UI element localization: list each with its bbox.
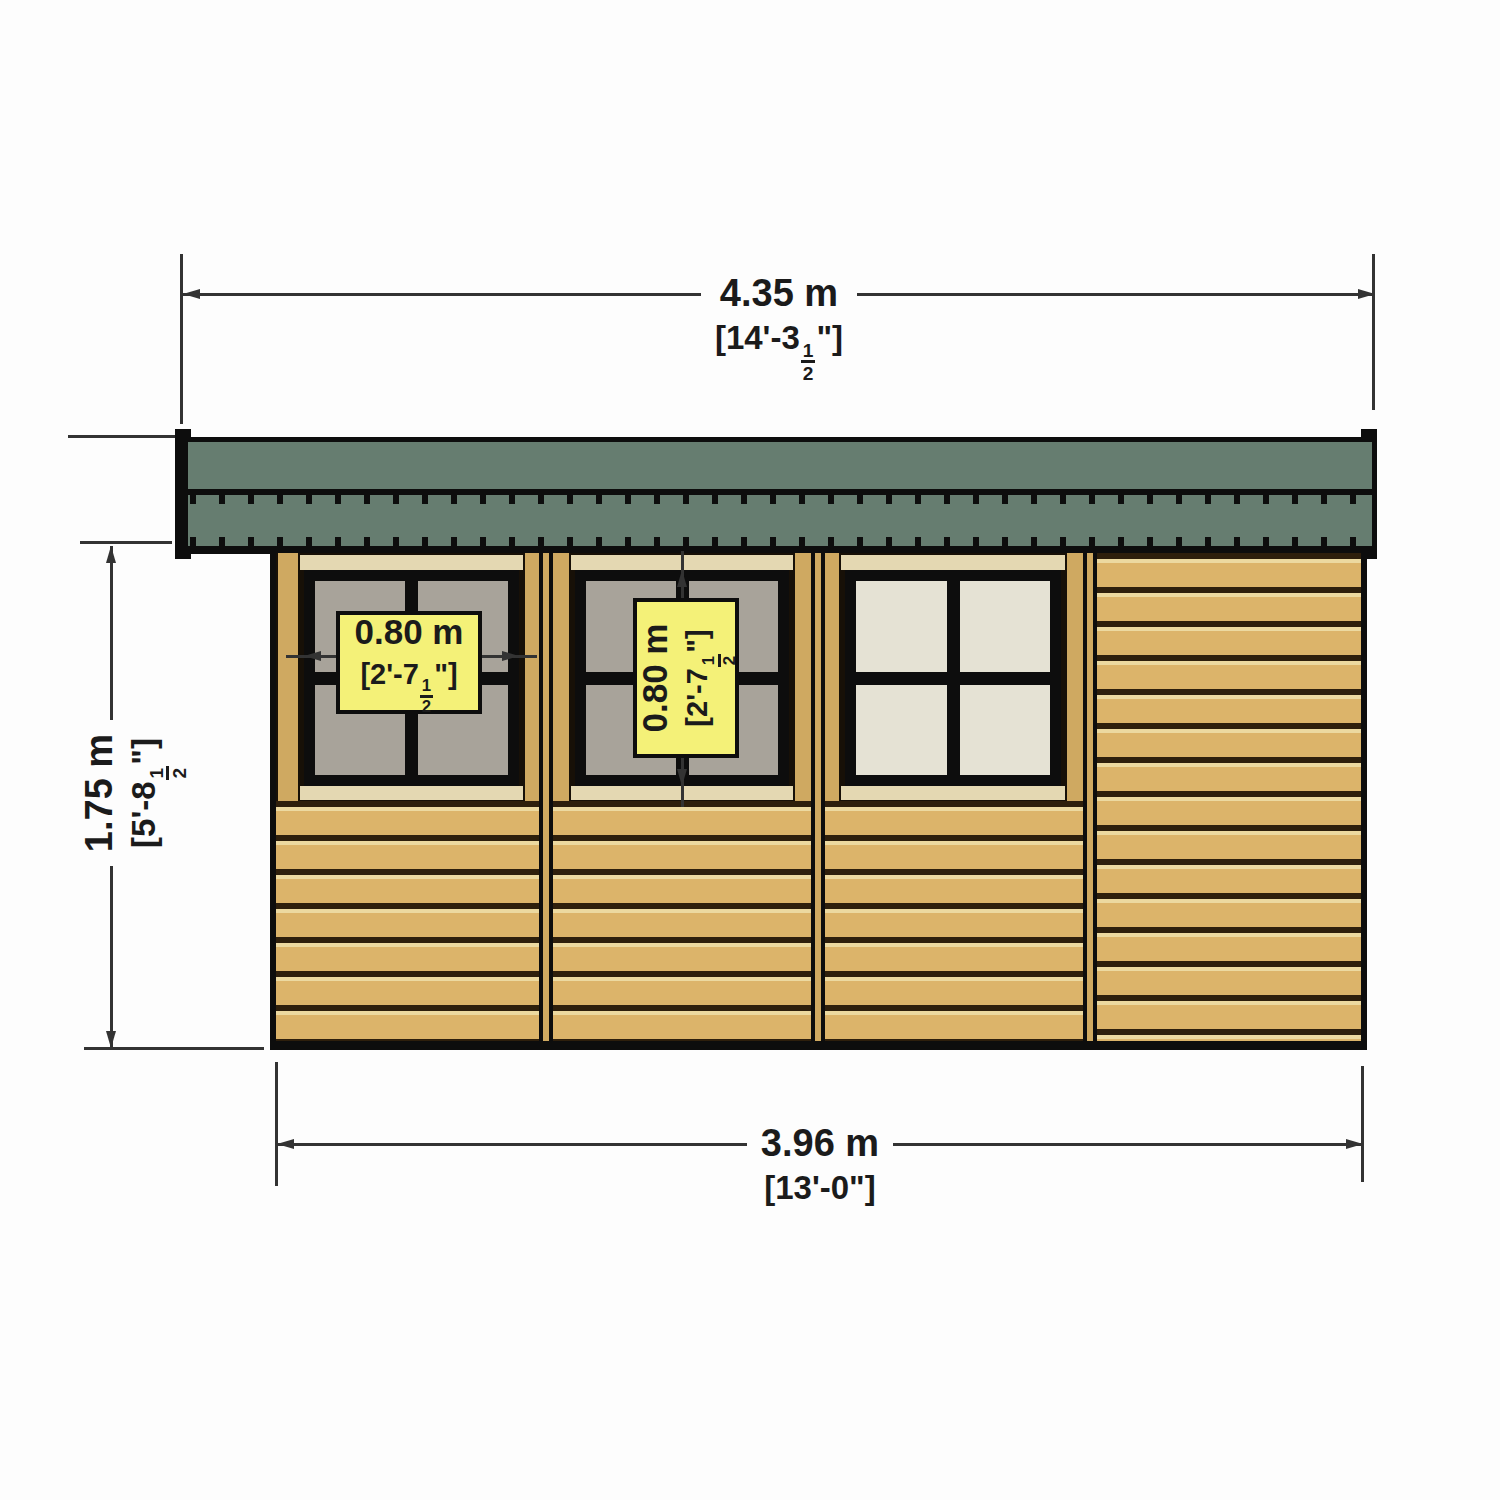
cladding-planks [817, 801, 1089, 1041]
stud-post [278, 553, 298, 801]
overall-width-imperial: [14'-312"] [715, 316, 843, 383]
base-width-metric: 3.96 m [761, 1121, 879, 1166]
eaves-height-metric: 1.75 m [77, 734, 122, 852]
window-head-trim [300, 555, 523, 570]
roof-felt-tabs-lower [190, 537, 1370, 546]
window-sill [841, 786, 1065, 800]
window-head-trim [841, 555, 1065, 570]
window1-width-label: 0.80 m [2'-712"] [336, 611, 482, 714]
cladding-planks [276, 801, 547, 1041]
window1-dim-arrow-right [502, 651, 519, 661]
left-dim-text: 1.75 m [5'-812"] [88, 693, 178, 893]
eaves-height-imperial: [5'-812"] [122, 734, 189, 852]
window1-width-imperial: [2'-712"] [360, 654, 457, 716]
window-pane [960, 685, 1051, 776]
shed-elevation-drawing: 4.35 m [14'-312"] 1.75 m [5'-812"] 3.96 … [0, 0, 1500, 1500]
bottom-dim-text: 3.96 m [13'-0"] [277, 1121, 1363, 1210]
left-dim-extension-rooftop [68, 435, 176, 438]
roof-felt-tabs-upper [190, 495, 1370, 504]
panel-joint [811, 553, 825, 1041]
wall-panel-4 [1089, 553, 1361, 1041]
window2-dim-arrow-bottom [677, 769, 687, 786]
cladding-planks [1089, 553, 1361, 1041]
window1-dim-arrow-left [304, 651, 321, 661]
window-pane [960, 581, 1051, 672]
left-dim-extension-eaves [80, 541, 172, 544]
window2-dim-arrow-top [677, 570, 687, 587]
panel-joint [1083, 553, 1097, 1041]
window-pane [856, 685, 947, 776]
window-pane [856, 581, 947, 672]
window-3 [845, 570, 1061, 786]
window2-height-metric: 0.80 m [633, 624, 677, 733]
roof [183, 437, 1377, 554]
window-sill [300, 786, 523, 800]
top-dim-text: 4.35 m [14'-312"] [183, 271, 1375, 383]
wall-panel-3 [817, 553, 1089, 1041]
cladding-planks [547, 801, 817, 1041]
left-dim-arrow-top [106, 546, 116, 563]
panel-joint [539, 553, 553, 1041]
left-dim-arrow-bottom [106, 1031, 116, 1048]
base-width-imperial: [13'-0"] [761, 1166, 879, 1210]
overall-width-metric: 4.35 m [715, 271, 843, 316]
window1-width-metric: 0.80 m [355, 610, 464, 654]
window2-height-imperial: [2'-712"] [677, 629, 739, 726]
window2-height-label: 0.80 m [2'-712"] [633, 598, 739, 758]
